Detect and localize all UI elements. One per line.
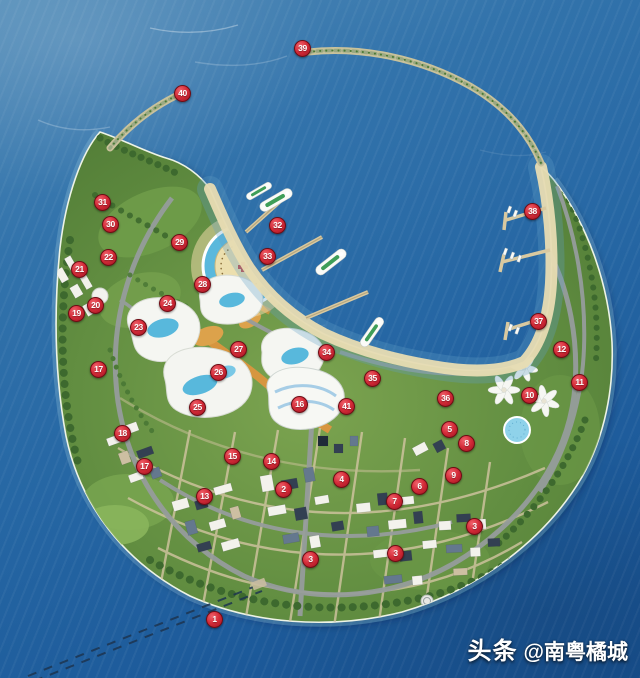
map-marker-35: 35 (364, 370, 381, 387)
map-marker-5: 5 (441, 421, 458, 438)
map-marker-13: 13 (196, 488, 213, 505)
map-marker-22: 22 (100, 249, 117, 266)
map-marker-33: 33 (259, 248, 276, 265)
map-marker-16: 16 (291, 396, 308, 413)
map-marker-6: 6 (411, 478, 428, 495)
map-marker-34: 34 (318, 344, 335, 361)
watermark: 头条@南粤橘城 (468, 631, 628, 666)
map-marker-15: 15 (224, 448, 241, 465)
map-marker-37: 37 (530, 313, 547, 330)
map-marker-3: 3 (387, 545, 404, 562)
map-marker-36: 36 (437, 390, 454, 407)
map-marker-31: 31 (94, 194, 111, 211)
map-marker-1: 1 (206, 611, 223, 628)
map-marker-2: 2 (275, 481, 292, 498)
map-marker-27: 27 (230, 341, 247, 358)
map-marker-3: 3 (302, 551, 319, 568)
map-marker-30: 30 (102, 216, 119, 233)
map-marker-29: 29 (171, 234, 188, 251)
map-marker-12: 12 (553, 341, 570, 358)
marker-layer: 1233345678910111213141516171718192021222… (0, 0, 640, 678)
map-marker-23: 23 (130, 319, 147, 336)
map-marker-10: 10 (521, 387, 538, 404)
watermark-handle: @南粤橘城 (524, 641, 628, 664)
watermark-brand: 头条 (468, 638, 518, 665)
map-marker-17: 17 (90, 361, 107, 378)
map-marker-7: 7 (386, 493, 403, 510)
map-marker-25: 25 (189, 399, 206, 416)
map-marker-28: 28 (194, 276, 211, 293)
map-marker-17: 17 (136, 458, 153, 475)
map-marker-32: 32 (269, 217, 286, 234)
map-marker-9: 9 (445, 467, 462, 484)
map-marker-26: 26 (210, 364, 227, 381)
map-marker-24: 24 (159, 295, 176, 312)
map-marker-3: 3 (466, 518, 483, 535)
map-marker-40: 40 (174, 85, 191, 102)
map-marker-4: 4 (333, 471, 350, 488)
map-marker-20: 20 (87, 297, 104, 314)
map-marker-39: 39 (294, 40, 311, 57)
map-marker-21: 21 (71, 261, 88, 278)
map-marker-18: 18 (114, 425, 131, 442)
map-marker-11: 11 (571, 374, 588, 391)
map-marker-41: 41 (338, 398, 355, 415)
map-marker-8: 8 (458, 435, 475, 452)
island-aerial-image: 1233345678910111213141516171718192021222… (0, 0, 640, 678)
map-marker-38: 38 (524, 203, 541, 220)
map-marker-19: 19 (68, 305, 85, 322)
map-marker-14: 14 (263, 453, 280, 470)
